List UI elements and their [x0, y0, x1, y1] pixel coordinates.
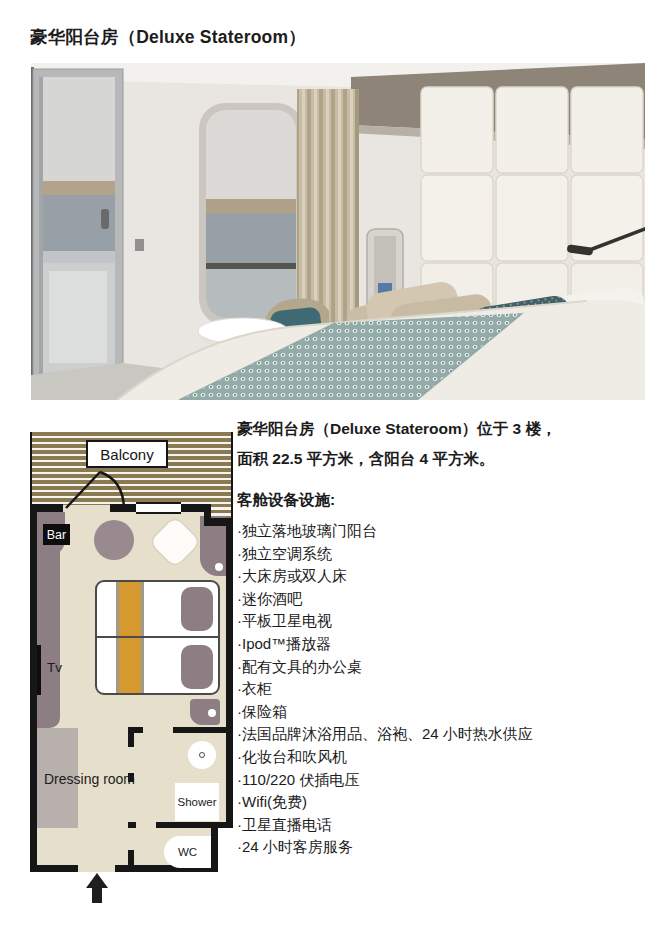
page-title: 豪华阳台房（Deluxe Stateroom） [30, 25, 306, 49]
amenity-item: ·24 小时客房服务 [237, 836, 661, 859]
plan-wall [211, 822, 218, 872]
plan-entrance-arrow [92, 887, 102, 903]
amenity-item: ·独立落地玻璃门阳台 [237, 520, 661, 543]
plan-wall [128, 822, 136, 828]
amenity-item: ·化妆台和吹风机 [237, 746, 661, 769]
plan-wall [128, 850, 134, 872]
plan-dressing-room-label: Dressing room [44, 770, 136, 789]
amenity-item: ·法国品牌沐浴用品、浴袍、24 小时热水供应 [237, 723, 661, 746]
amenity-item: ·大床房或双人床 [237, 565, 661, 588]
amenity-item: ·Ipod™播放器 [237, 633, 661, 656]
photo-window [199, 103, 303, 325]
amenities-heading: 客舱设备设施: [237, 489, 661, 511]
amenity-item: ·Wifi(免费) [237, 791, 661, 814]
plan-wc: WC [164, 836, 211, 868]
plan-wall [30, 865, 78, 872]
plan-corner-unit-lamp [215, 563, 223, 571]
plan-balcony-label: Balcony [86, 440, 168, 468]
amenity-item: ·卫星直播电话 [237, 814, 661, 837]
plan-pillow [181, 587, 213, 631]
plan-wall [30, 504, 37, 872]
amenity-item: ·配有文具的办公桌 [237, 656, 661, 679]
plan-wall [128, 727, 134, 747]
amenity-item: ·平板卫星电视 [237, 610, 661, 633]
photo-thermostat [135, 239, 144, 251]
plan-tv-label: Tv [47, 660, 62, 675]
plan-washbasin-drain [199, 752, 205, 758]
amenity-item: ·110/220 伏插电压 [237, 769, 661, 792]
plan-entrance-arrow [86, 873, 108, 888]
amenity-item: ·独立空调系统 [237, 543, 661, 566]
stateroom-photo [31, 63, 645, 400]
plan-exterior [218, 828, 233, 872]
description-line-1: 豪华阳台房（Deluxe Stateroom）位于 3 楼， [237, 414, 661, 444]
amenity-item: ·保险箱 [237, 701, 661, 724]
description-line-2: 面积 22.5 平方米，含阳台 4 平方米。 [237, 444, 661, 474]
plan-wall [226, 518, 233, 828]
amenities-list: ·独立落地玻璃门阳台·独立空调系统·大床房或双人床·迷你酒吧·平板卫星电视·Ip… [237, 520, 661, 859]
amenity-item: ·衣柜 [237, 678, 661, 701]
plan-bed-divider [97, 636, 218, 638]
plan-wall [156, 822, 233, 828]
room-description: 豪华阳台房（Deluxe Stateroom）位于 3 楼， 面积 22.5 平… [237, 414, 661, 859]
amenity-item: ·迷你酒吧 [237, 588, 661, 611]
plan-tv [37, 645, 41, 695]
plan-wall [173, 727, 233, 733]
door-handle [101, 209, 109, 229]
plan-nightstand-lamp [208, 709, 216, 717]
plan-pillow [181, 645, 213, 689]
plan-shower: Shower [175, 783, 219, 821]
stateroom-photo-art [31, 63, 645, 400]
page: 豪华阳台房（Deluxe Stateroom） [0, 0, 668, 939]
photo-balcony-door [31, 67, 123, 389]
floor-plan: Balcony Bar Tv Dressing room Shower WC [30, 432, 233, 908]
